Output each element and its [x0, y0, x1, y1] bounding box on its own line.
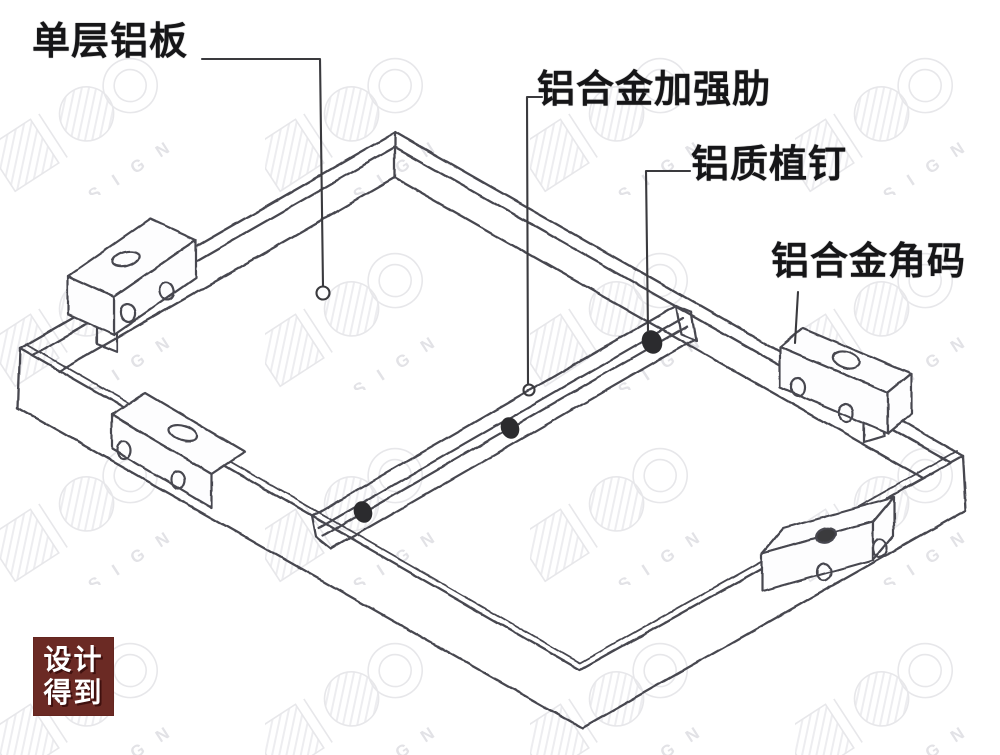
label-aluminum-alloy-corner-bracket: 铝合金角码 [771, 243, 966, 281]
label-single-layer-aluminum-panel: 单层铝板 [32, 23, 188, 61]
panel-backside-diagram: DESIGN [0, 0, 1000, 755]
label-aluminum-alloy-stiffener-rib: 铝合金加强肋 [537, 71, 771, 109]
label-aluminum-stud: 铝质植钉 [691, 146, 847, 184]
brand-logo: 设计 得到 [33, 637, 114, 716]
brand-logo-line1: 设计 [43, 644, 103, 676]
brand-logo-line2: 得到 [43, 677, 103, 709]
diagram-page: DESIGN [0, 0, 1000, 755]
